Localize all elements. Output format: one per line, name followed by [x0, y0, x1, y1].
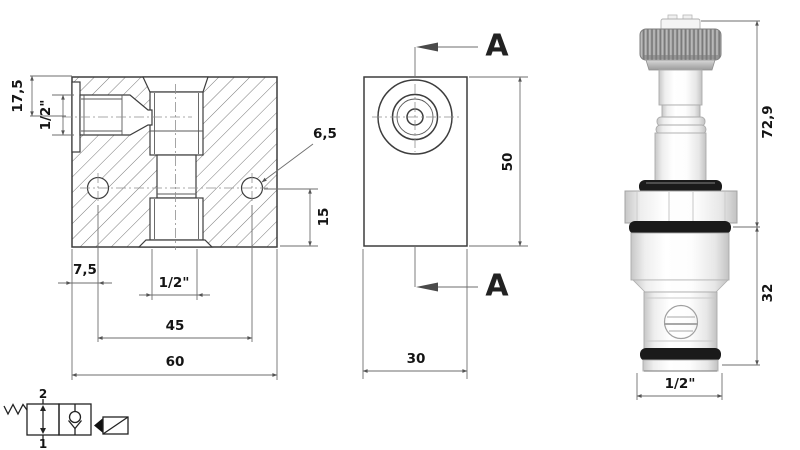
- dim-32: 32: [722, 227, 776, 365]
- section-arrow-icon: [416, 43, 438, 52]
- dim-72-9-label: 72,9: [760, 105, 776, 138]
- valve-upper-body: [631, 233, 729, 292]
- check-valve-icon: [69, 404, 82, 435]
- dim-60: 60: [72, 249, 277, 380]
- drawing-canvas: 17,5 1/2" 7,5 1/2": [0, 0, 800, 450]
- solenoid-icon: [94, 417, 128, 434]
- dim-50-label: 50: [500, 153, 516, 172]
- section-a-bottom-label: A: [485, 269, 509, 304]
- dim-30-label: 30: [407, 351, 426, 367]
- dim-7-5-label: 7,5: [73, 262, 97, 278]
- o-ring-lower: [640, 348, 721, 361]
- dim-6-5-label: 6,5: [313, 126, 337, 142]
- dim-port-half-inch-label: 1/2": [38, 100, 54, 131]
- dim-17-5-label: 17,5: [10, 79, 26, 112]
- section-a-top-label: A: [485, 29, 509, 64]
- dim-50: 50: [469, 77, 528, 246]
- dim-15-label: 15: [316, 208, 332, 227]
- technical-drawing-page: 17,5 1/2" 7,5 1/2": [0, 0, 800, 450]
- valve-lower-body: [644, 292, 717, 351]
- section-arrow-icon: [416, 283, 438, 292]
- side-block-outline: [364, 77, 467, 246]
- o-ring-highlight: [646, 182, 715, 184]
- valve-hex-flange: [625, 191, 737, 223]
- flow-arrow-icon: [40, 405, 46, 434]
- valve-photo: 72,9 32 1/2": [625, 15, 776, 400]
- dim-thread-half-inch: 1/2": [637, 373, 722, 400]
- dim-60-label: 60: [166, 354, 185, 370]
- valve-stem: [655, 70, 706, 181]
- spring-icon: [4, 405, 27, 415]
- hydraulic-symbol: 2 1: [4, 387, 128, 450]
- section-mark-bottom: A: [415, 247, 509, 304]
- dim-port-half-inch: 1/2": [38, 95, 74, 135]
- dim-bottom-half-inch: 1/2": [139, 249, 210, 300]
- o-ring-seat: [629, 221, 731, 234]
- symbol-port-2-label: 2: [39, 387, 47, 401]
- section-mark-top: A: [415, 29, 509, 77]
- dim-45-label: 45: [166, 318, 185, 334]
- front-view: 17,5 1/2" 7,5 1/2": [10, 76, 337, 380]
- dim-bottom-half-inch-label: 1/2": [159, 275, 190, 291]
- dim-32-label: 32: [760, 284, 776, 303]
- dim-thread-half-inch-label: 1/2": [665, 376, 696, 392]
- valve-bottom-band: [643, 360, 718, 371]
- valve-knurled-nut: [640, 29, 721, 70]
- side-view: A A 50 30: [363, 29, 528, 380]
